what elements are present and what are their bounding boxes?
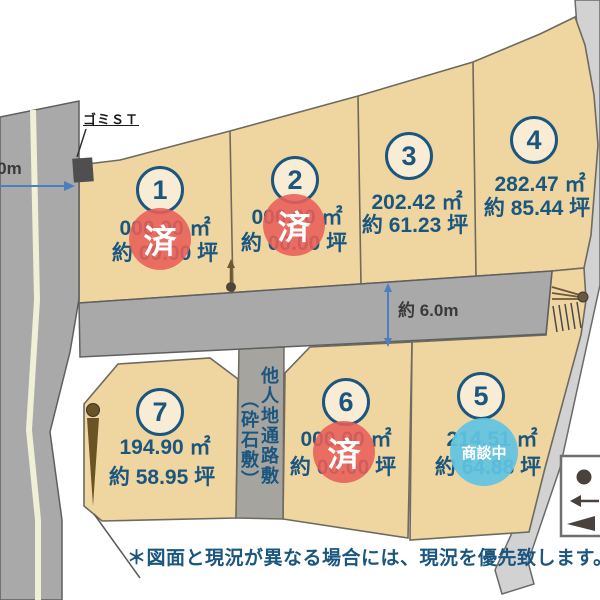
lot-2-sold-badge: 済 bbox=[263, 194, 325, 256]
left-road-width-label: 6.0m bbox=[0, 159, 22, 179]
lot-6-number: 6 bbox=[322, 378, 370, 426]
lot-7-number: 7 bbox=[136, 388, 184, 436]
lot-7-area-m2: 194.90 ㎡ bbox=[119, 431, 210, 461]
middle-road-width-label: 約 6.0m bbox=[398, 296, 458, 321]
lot-5-negotiating-badge: 商談中 bbox=[450, 418, 518, 486]
lot-4-area-tsubo: 約 85.44 坪 bbox=[484, 192, 590, 222]
lot-7-area-tsubo: 約 58.95 坪 bbox=[109, 461, 215, 491]
passage-strip-label-sub: （砕石敷） bbox=[236, 390, 262, 490]
lot-6-sold-badge: 済 bbox=[313, 421, 375, 483]
legend-box bbox=[561, 456, 600, 536]
garbage-station-label: ゴミＳＴ bbox=[83, 109, 139, 128]
disclaimer-note: ＊図面と現況が異なる場合には、現況を優先致します。 bbox=[127, 543, 600, 570]
lot-1-sold-badge: 済 bbox=[129, 208, 191, 270]
lot-3-area-tsubo: 約 61.23 坪 bbox=[362, 209, 468, 239]
garbage-station-icon bbox=[72, 157, 94, 182]
lot-4-number: 4 bbox=[510, 116, 558, 164]
lot-1-number: 1 bbox=[136, 166, 184, 214]
legend-pole-dot-icon bbox=[577, 470, 592, 485]
map-drawing bbox=[0, 0, 600, 600]
lot-3-number: 3 bbox=[385, 132, 433, 180]
subdivision-map: ゴミＳＴ 6.0m 約 6.0m 他人地通路敷 （砕石敷） 1 000.00 ㎡… bbox=[0, 0, 600, 600]
lot-5-number: 5 bbox=[457, 372, 505, 420]
